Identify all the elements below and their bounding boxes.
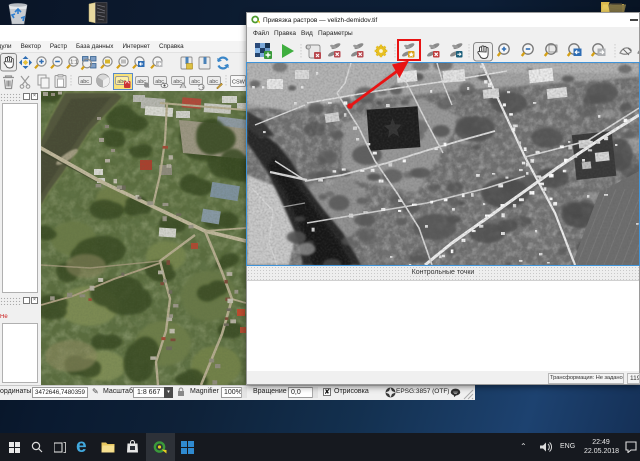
svg-text:abc: abc (173, 79, 182, 85)
svg-text:abc: abc (191, 79, 200, 85)
svg-text:1:1: 1:1 (70, 60, 78, 66)
svg-text:abc: abc (209, 79, 218, 85)
svg-text:abc: abc (80, 79, 89, 85)
svg-text:CSW: CSW (232, 80, 246, 86)
